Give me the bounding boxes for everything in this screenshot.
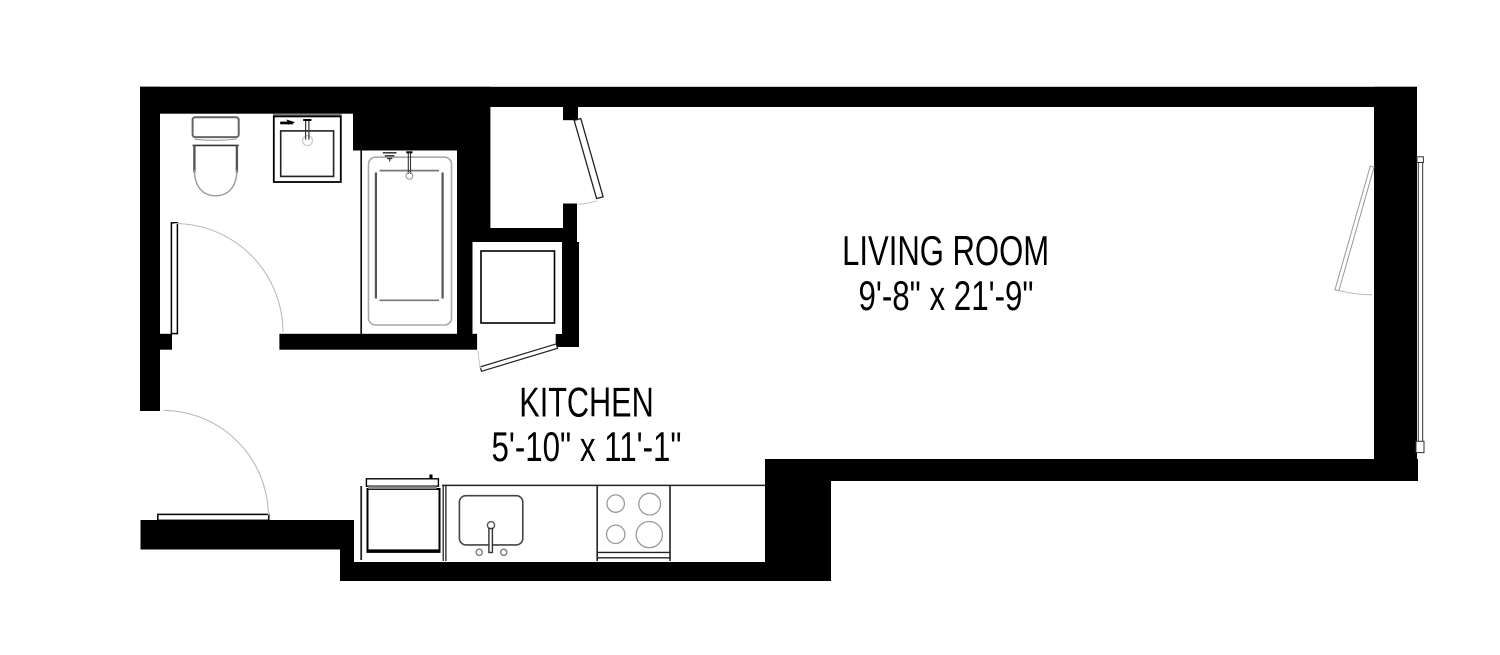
- svg-text:KITCHEN: KITCHEN: [519, 380, 654, 426]
- svg-text:LIVING ROOM: LIVING ROOM: [842, 228, 1049, 274]
- svg-text:5'-10" x 11'-1": 5'-10" x 11'-1": [492, 424, 682, 470]
- svg-text:9'-8" x 21'-9": 9'-8" x 21'-9": [859, 273, 1034, 319]
